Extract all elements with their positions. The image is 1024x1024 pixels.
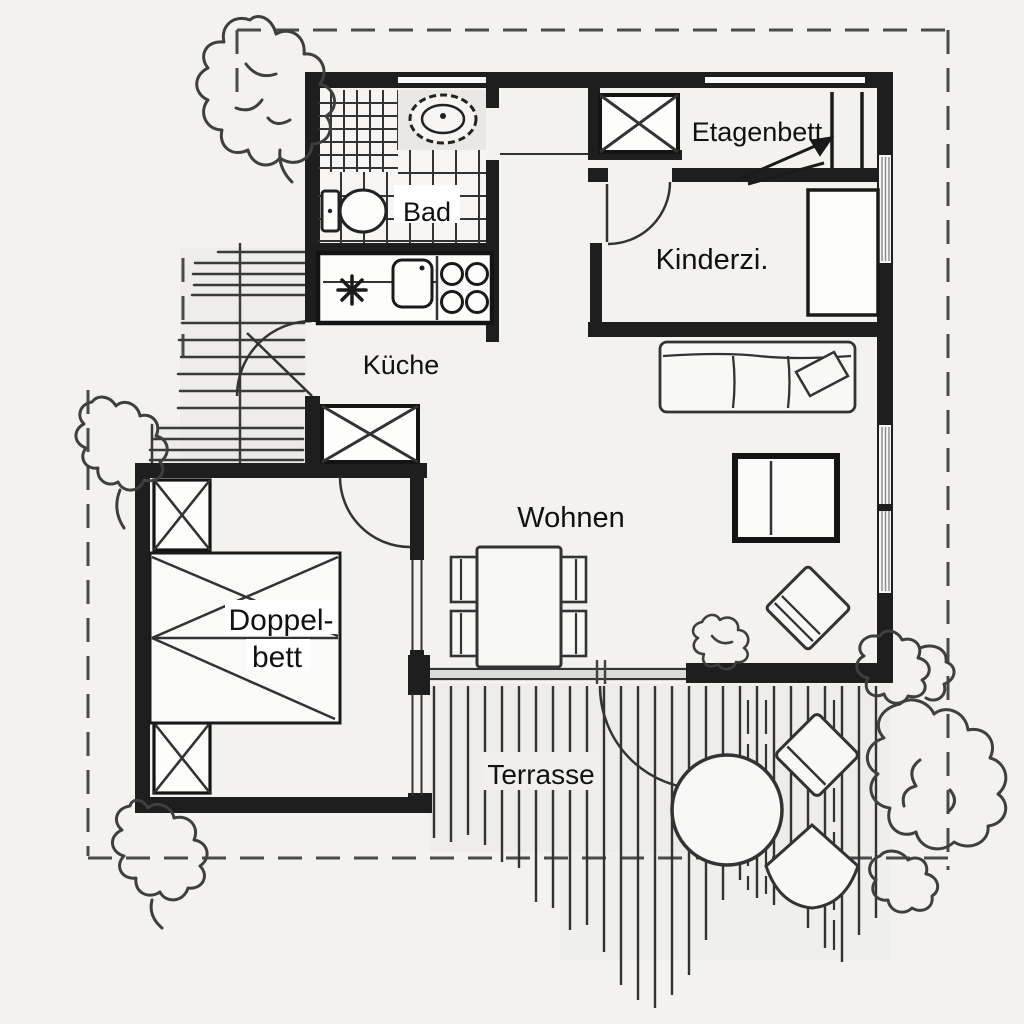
square-table bbox=[735, 456, 837, 540]
entry-wardrobe bbox=[322, 406, 418, 462]
double-bed bbox=[150, 553, 340, 723]
floor-plan-drawing: Bad Etagenbett Kinderzi. Küche Wohnen Do… bbox=[0, 0, 1024, 1024]
bedroom-wardrobe-top bbox=[154, 480, 210, 550]
top-wall-window-2 bbox=[705, 77, 865, 83]
label-etagenbett: Etagenbett bbox=[692, 117, 823, 147]
dining-table bbox=[477, 547, 561, 667]
bush-bottom-left bbox=[112, 800, 207, 900]
bunk-bed bbox=[832, 92, 862, 168]
label-kinderzimmer: Kinderzi. bbox=[656, 244, 769, 276]
kinderzimmer-door bbox=[607, 182, 670, 244]
floor-plan: Bad Etagenbett Kinderzi. Küche Wohnen Do… bbox=[0, 0, 1024, 1024]
kitchen-counter bbox=[318, 253, 492, 323]
label-kueche: Küche bbox=[363, 350, 440, 380]
living-room-furniture bbox=[451, 342, 855, 667]
dining-chair bbox=[451, 557, 478, 602]
plant-living-room bbox=[693, 615, 748, 669]
armchair bbox=[766, 566, 851, 651]
washbasin bbox=[398, 90, 486, 150]
freezer-star-icon bbox=[338, 276, 366, 304]
hall-wardrobe bbox=[600, 95, 678, 152]
label-doppelbett-line1: Doppel- bbox=[228, 604, 333, 637]
label-doppelbett-line2: bett bbox=[252, 641, 303, 674]
dining-chair bbox=[451, 611, 478, 656]
label-terrasse: Terrasse bbox=[487, 759, 594, 790]
top-wall-window bbox=[398, 77, 486, 83]
kinderzimmer-desk bbox=[808, 190, 878, 315]
label-bad: Bad bbox=[403, 197, 451, 227]
dining-chair bbox=[559, 611, 586, 656]
bedroom-door bbox=[340, 477, 410, 547]
dining-chair bbox=[559, 557, 586, 602]
toilet bbox=[322, 190, 386, 232]
label-wohnen: Wohnen bbox=[517, 502, 625, 534]
bedroom-wardrobe-bottom bbox=[154, 723, 210, 793]
kitchen-sink bbox=[393, 260, 432, 307]
sofa bbox=[660, 342, 855, 412]
terrace-round-table bbox=[672, 755, 782, 865]
dining-set bbox=[451, 547, 586, 667]
